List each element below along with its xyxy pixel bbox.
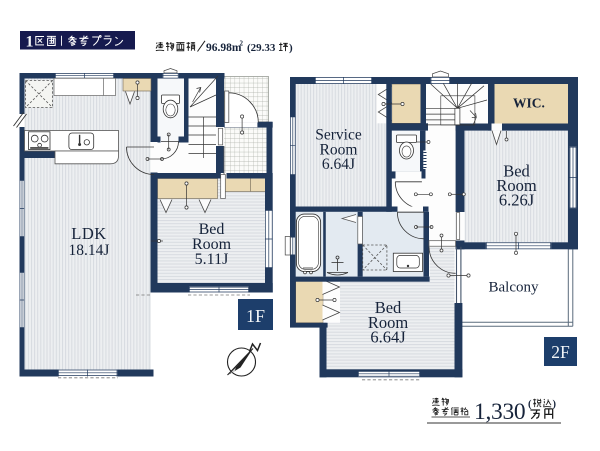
- svg-text:): ): [553, 399, 557, 410]
- svg-text:Balcony: Balcony: [489, 280, 539, 296]
- svg-text:5.11J: 5.11J: [195, 251, 229, 268]
- svg-text:(29.33: (29.33: [247, 42, 276, 54]
- svg-text:18.14J: 18.14J: [69, 242, 110, 259]
- svg-text:1,330: 1,330: [474, 399, 525, 425]
- svg-text:96.98m: 96.98m: [206, 42, 242, 54]
- svg-text:WIC.: WIC.: [513, 96, 545, 111]
- svg-text:1: 1: [26, 34, 34, 51]
- svg-text:2F: 2F: [551, 342, 570, 362]
- svg-text:6.64J: 6.64J: [322, 156, 355, 173]
- svg-text:6.26J: 6.26J: [499, 191, 535, 210]
- svg-text:LDK: LDK: [71, 224, 106, 243]
- svg-text:): ): [289, 42, 293, 54]
- svg-text:(: (: [528, 399, 532, 410]
- svg-text:2: 2: [240, 40, 244, 48]
- svg-text:1F: 1F: [246, 306, 265, 326]
- svg-text:6.64J: 6.64J: [370, 328, 406, 347]
